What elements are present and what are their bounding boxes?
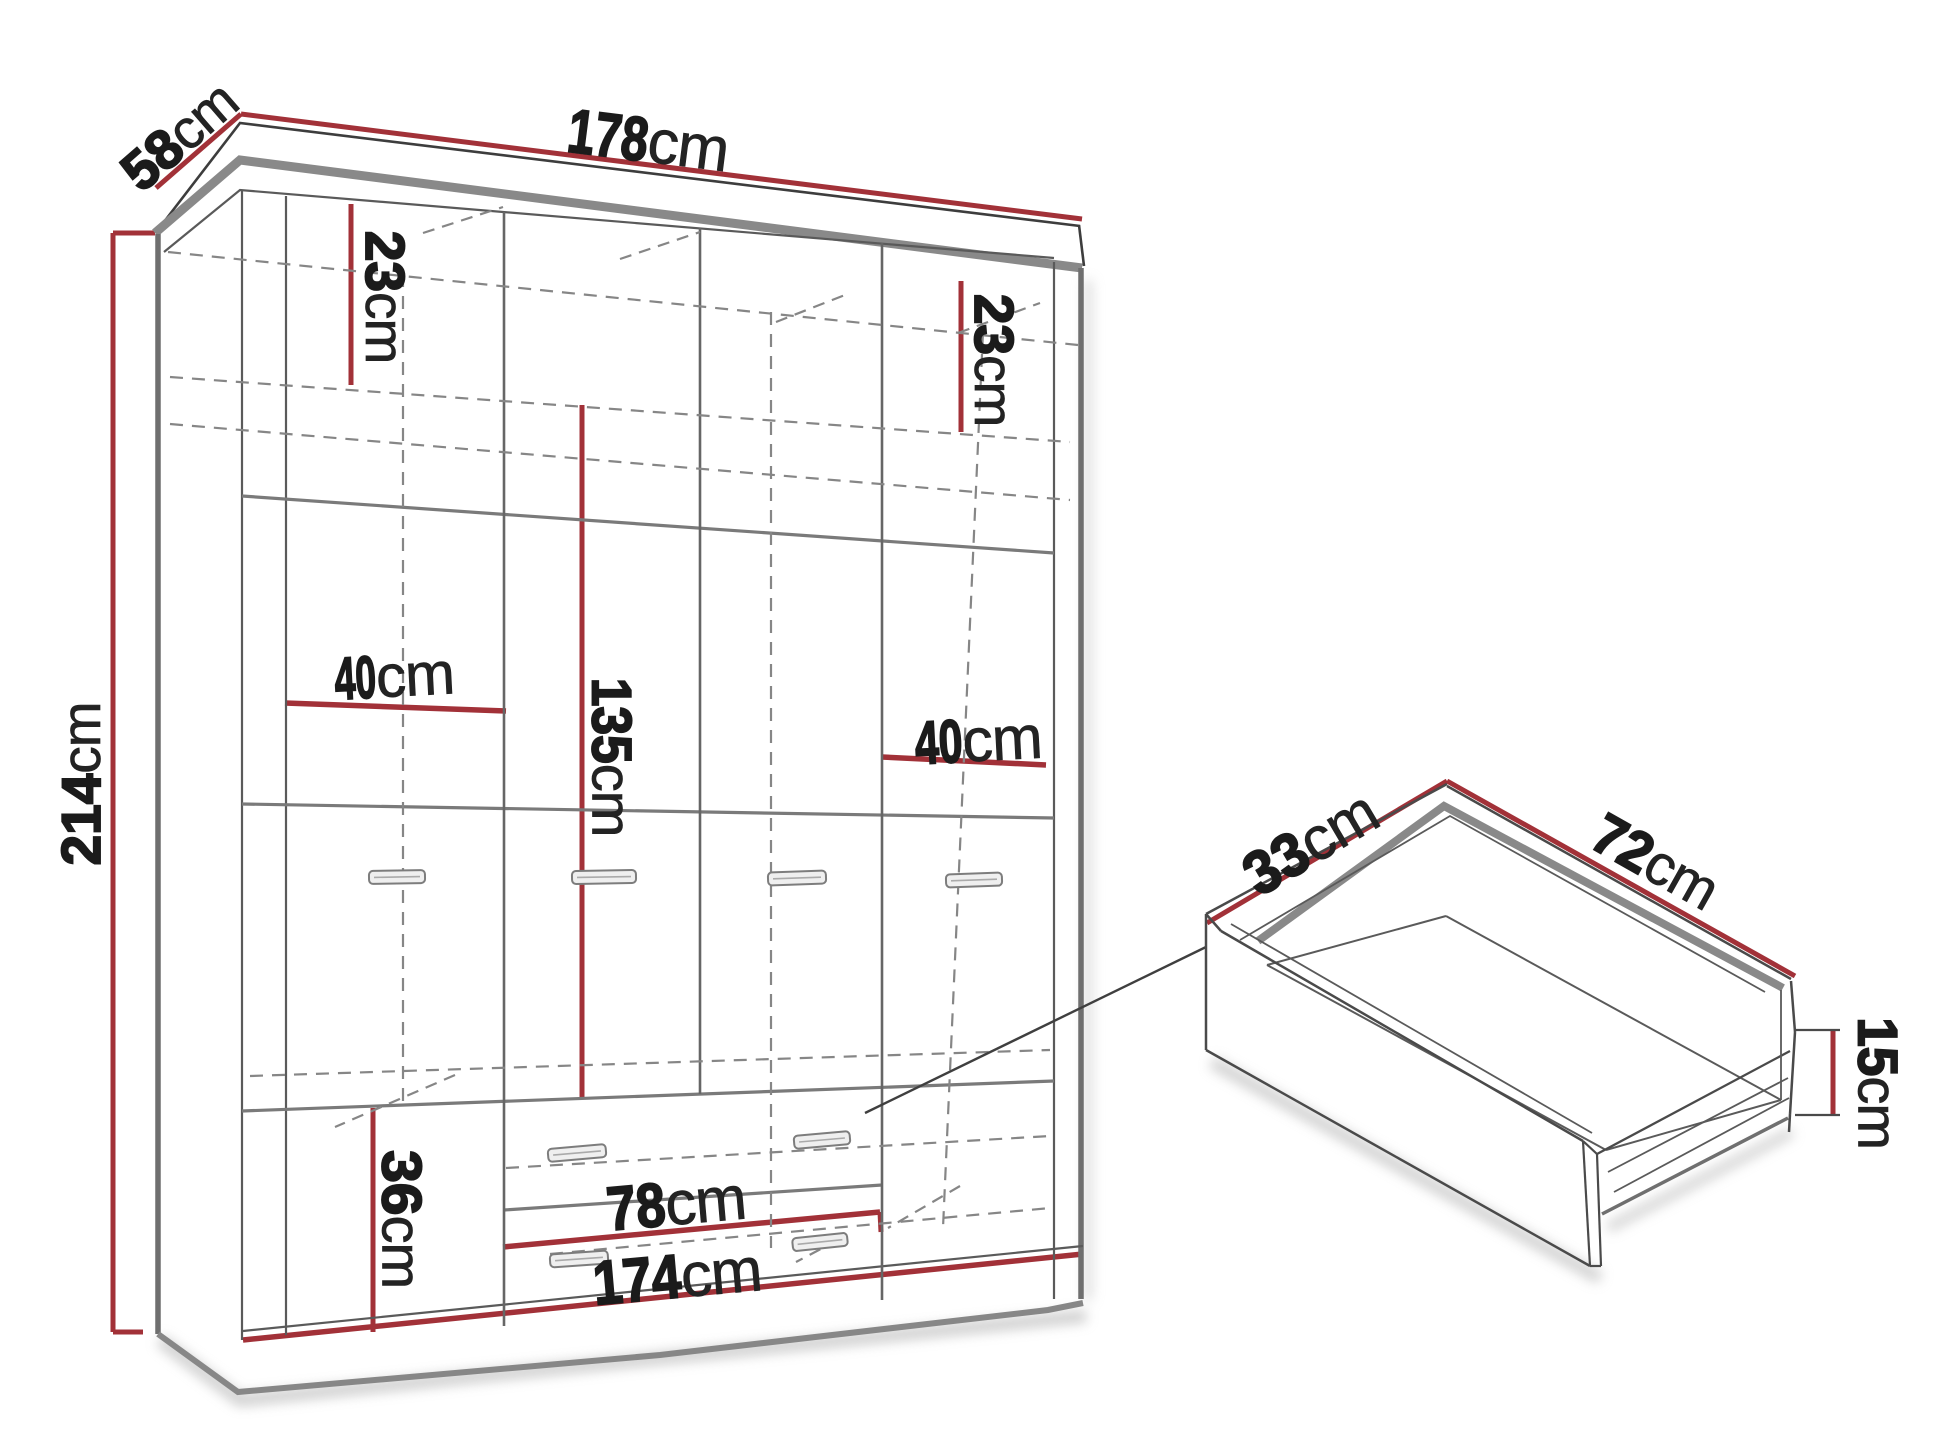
svg-text:cm: cm bbox=[374, 639, 455, 710]
svg-text:23: 23 bbox=[354, 231, 416, 292]
svg-text:36: 36 bbox=[371, 1150, 434, 1215]
svg-text:40: 40 bbox=[333, 643, 378, 712]
svg-text:15: 15 bbox=[1847, 1017, 1910, 1076]
svg-text:174: 174 bbox=[590, 1242, 684, 1318]
svg-text:cm: cm bbox=[961, 703, 1044, 775]
svg-text:214: 214 bbox=[50, 773, 112, 865]
svg-text:cm: cm bbox=[581, 764, 644, 837]
svg-text:cm: cm bbox=[1847, 1076, 1910, 1149]
svg-text:178: 178 bbox=[564, 97, 653, 176]
svg-text:cm: cm bbox=[50, 702, 112, 773]
svg-text:cm: cm bbox=[644, 107, 733, 186]
svg-text:cm: cm bbox=[678, 1235, 764, 1311]
svg-text:135: 135 bbox=[581, 678, 644, 764]
svg-text:cm: cm bbox=[662, 1164, 748, 1240]
svg-text:40: 40 bbox=[913, 707, 964, 777]
svg-text:cm: cm bbox=[371, 1216, 434, 1289]
svg-text:cm: cm bbox=[963, 355, 1025, 426]
svg-text:23: 23 bbox=[963, 294, 1025, 355]
svg-text:cm: cm bbox=[354, 292, 416, 363]
svg-text:78: 78 bbox=[604, 1171, 668, 1245]
